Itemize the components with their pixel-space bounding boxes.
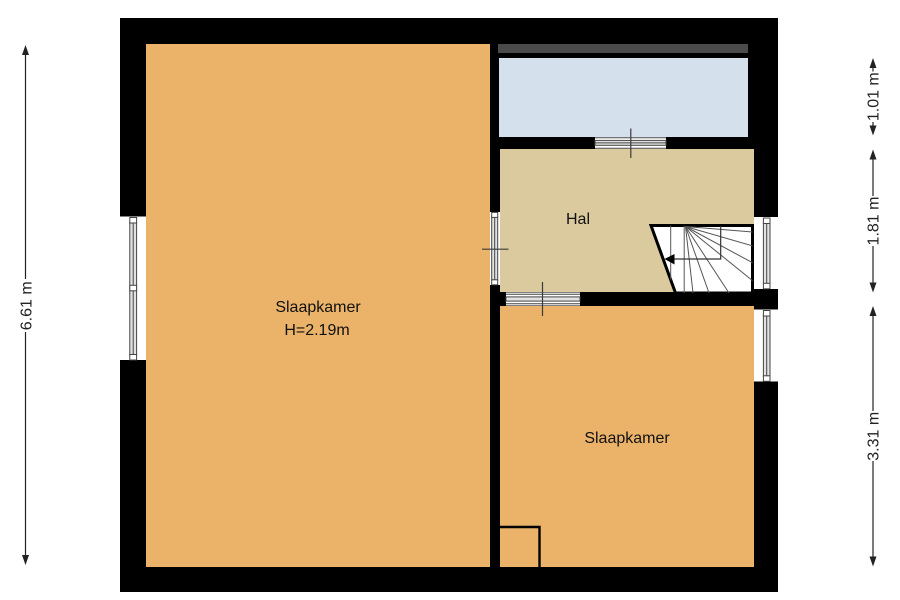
svg-text:1.81 m: 1.81 m — [865, 197, 882, 246]
svg-text:6.61 m: 6.61 m — [18, 281, 35, 330]
svg-text:3.31 m: 3.31 m — [865, 412, 882, 461]
svg-text:H=2.19m: H=2.19m — [284, 322, 349, 339]
svg-text:Slaapkamer: Slaapkamer — [275, 299, 361, 316]
svg-text:Slaapkamer: Slaapkamer — [584, 430, 670, 447]
svg-text:Hal: Hal — [566, 211, 590, 228]
svg-text:1.01 m: 1.01 m — [865, 72, 882, 121]
